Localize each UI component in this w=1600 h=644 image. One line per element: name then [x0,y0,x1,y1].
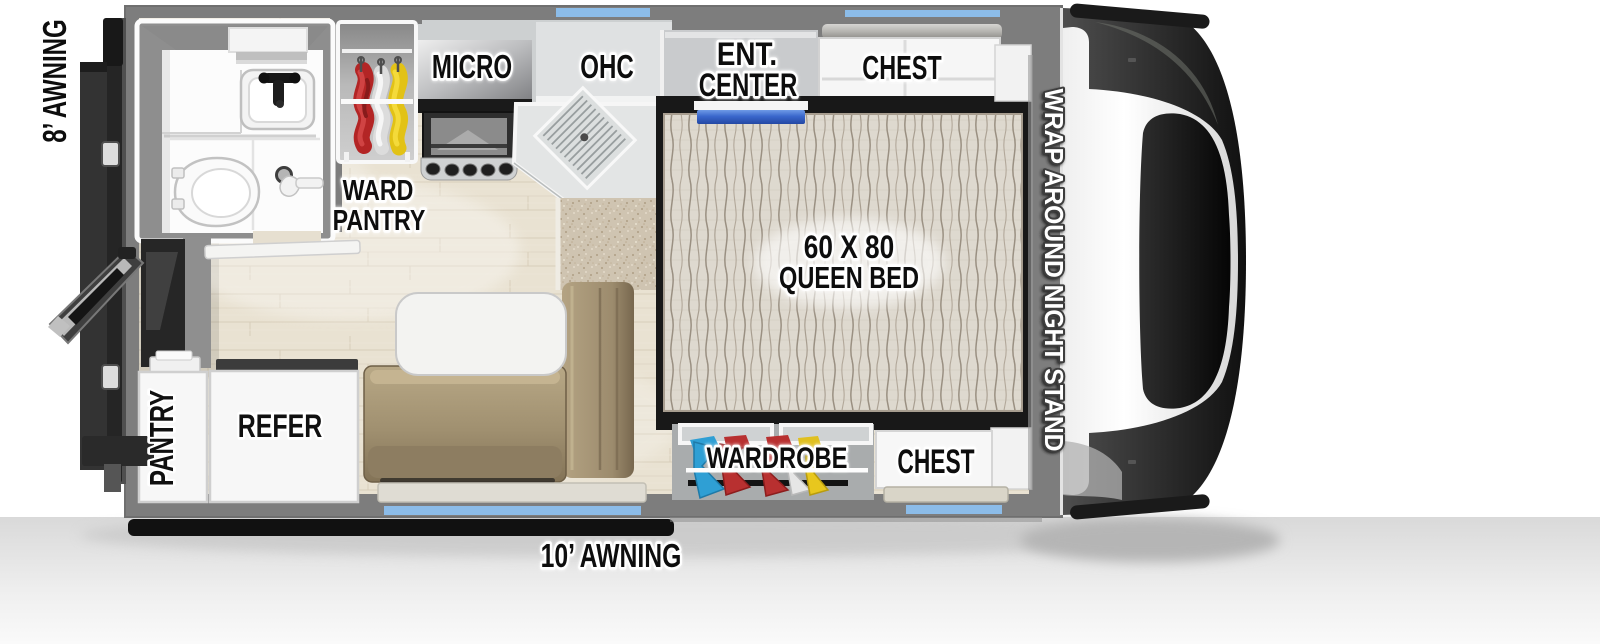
svg-text:MICRO: MICRO [432,49,512,86]
svg-text:PANTRY: PANTRY [144,390,181,486]
svg-text:QUEEN BED: QUEEN BED [779,260,919,295]
svg-text:REFER: REFER [238,409,323,445]
svg-text:10’ AWNING: 10’ AWNING [541,539,682,575]
svg-text:WARDROBE: WARDROBE [707,441,848,474]
svg-text:CHEST: CHEST [862,50,942,87]
svg-text:WARD: WARD [343,173,414,206]
svg-text:8’ AWNING: 8’ AWNING [37,19,74,143]
svg-text:CHEST: CHEST [897,444,974,482]
svg-text:PANTRY: PANTRY [333,203,426,236]
svg-text:OHC: OHC [580,49,634,86]
svg-text:CENTER: CENTER [699,67,798,103]
svg-text:WRAP AROUND NIGHT STAND: WRAP AROUND NIGHT STAND [1039,89,1068,452]
